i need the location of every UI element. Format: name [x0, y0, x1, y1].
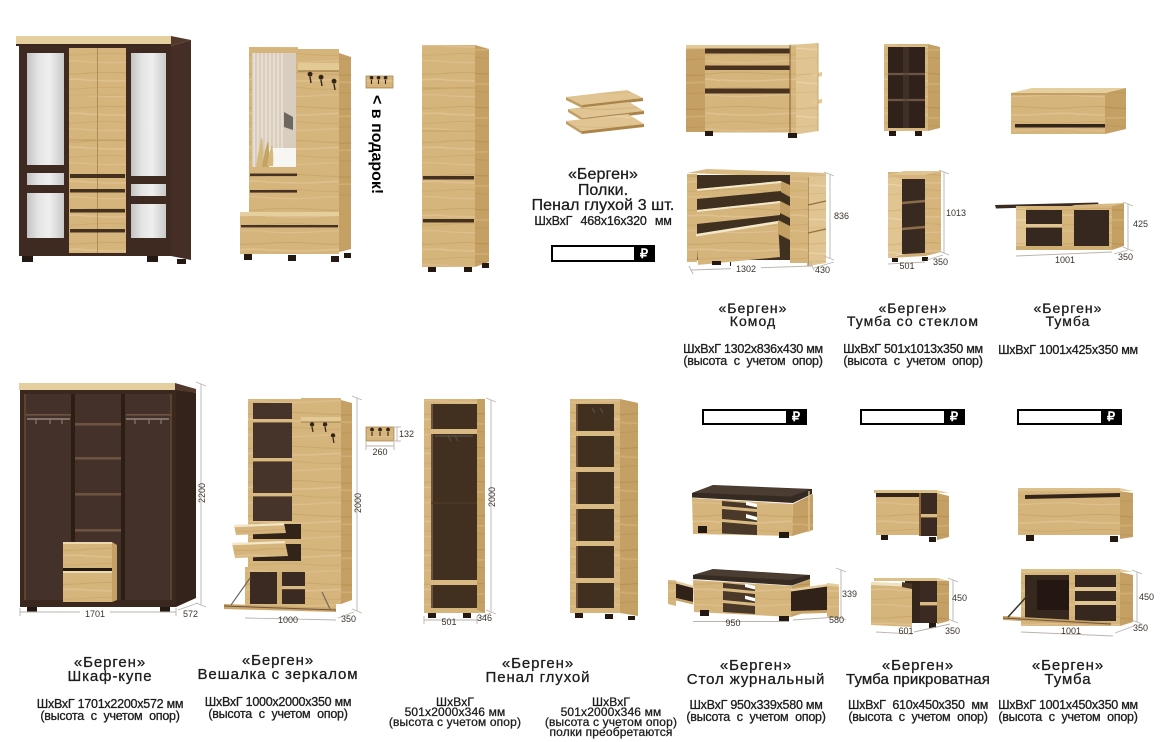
svg-text:1001: 1001	[1055, 255, 1075, 265]
svg-text:601: 601	[898, 626, 913, 636]
svg-text:572: 572	[183, 609, 198, 619]
svg-text:2000: 2000	[353, 493, 363, 513]
svg-text:260: 260	[372, 447, 387, 457]
svg-text:< в подарок!: < в подарок!	[368, 95, 385, 194]
svg-text:501: 501	[899, 261, 914, 271]
svg-text:2000: 2000	[487, 487, 497, 507]
svg-text:346: 346	[477, 613, 492, 623]
svg-text:1001: 1001	[1061, 626, 1081, 636]
svg-text:836: 836	[834, 211, 849, 221]
svg-text:2200: 2200	[197, 483, 207, 503]
svg-text:425: 425	[1133, 219, 1148, 229]
svg-text:1701: 1701	[85, 609, 105, 619]
svg-text:350: 350	[1133, 623, 1148, 633]
svg-text:339: 339	[842, 589, 857, 599]
svg-text:1000: 1000	[278, 615, 298, 625]
svg-text:1302: 1302	[736, 264, 756, 274]
svg-text:450: 450	[1139, 592, 1154, 602]
svg-text:350: 350	[1118, 252, 1133, 262]
svg-text:350: 350	[945, 626, 960, 636]
svg-text:501: 501	[441, 617, 456, 627]
svg-text:580: 580	[829, 615, 844, 625]
svg-text:132: 132	[399, 429, 414, 439]
svg-text:450: 450	[952, 593, 967, 603]
svg-text:350: 350	[341, 614, 356, 624]
svg-text:1013: 1013	[946, 208, 966, 218]
svg-text:950: 950	[725, 618, 740, 628]
svg-text:430: 430	[815, 265, 830, 275]
svg-text:350: 350	[933, 257, 948, 267]
